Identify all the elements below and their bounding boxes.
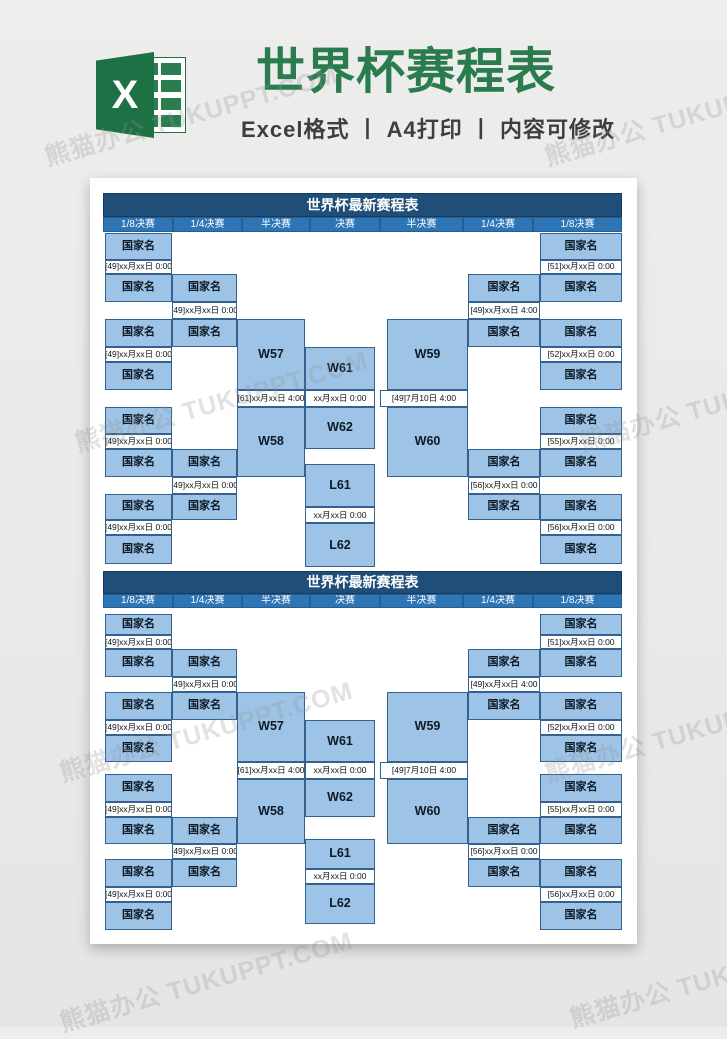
match-date: [49]xx月xx日 0:00 [105,260,172,274]
match-date: [49]xx月xx日 0:00 [105,802,172,817]
team-cell: 国家名 [468,449,540,477]
team-cell: 国家名 [172,649,237,677]
team-cell: 国家名 [105,649,172,677]
match-slot: W59 [387,319,468,391]
team-cell: 国家名 [105,735,172,762]
match-date: [49]xx月xx日 0:00 [172,477,237,494]
team-cell: 国家名 [105,494,172,521]
team-cell: 国家名 [172,692,237,721]
excel-logo-icon: X [96,52,186,138]
round-header: 1/8决赛 [533,217,622,232]
round-header: 1/8决赛 [103,594,173,609]
team-cell: 国家名 [105,774,172,802]
team-cell: 国家名 [172,859,237,887]
team-cell: 国家名 [540,535,622,564]
team-cell: 国家名 [540,902,622,931]
team-cell: 国家名 [105,692,172,721]
match-date: [56]xx月xx日 0:00 [540,520,622,535]
match-date: [49]xx月xx日 4:00 [468,302,540,319]
match-date: [55]xx月xx日 0:00 [540,802,622,817]
bracket-table: 世界杯最新赛程表1/8决赛1/4决赛半决赛决赛半决赛1/4决赛1/8决赛国家名[… [103,571,622,931]
match-date: [52]xx月xx日 0:00 [540,347,622,362]
team-cell: 国家名 [172,319,237,347]
team-cell: 国家名 [540,692,622,721]
round-header: 1/4决赛 [173,217,242,232]
team-cell: 国家名 [540,817,622,844]
team-cell: 国家名 [468,274,540,303]
team-cell: 国家名 [468,817,540,844]
match-slot: W58 [237,779,305,844]
team-cell: 国家名 [540,319,622,347]
round-header: 1/8决赛 [533,594,622,609]
match-slot: W61 [305,720,375,762]
banner-title: 世界杯赛程表 [216,46,596,100]
match-date: [49]xx月xx日 0:00 [172,677,237,692]
team-cell: 国家名 [105,449,172,477]
team-cell: 国家名 [172,817,237,844]
match-date: [61]xx月xx日 4:00 [237,390,305,407]
round-header: 决赛 [310,217,380,232]
team-cell: 国家名 [540,362,622,391]
team-cell: 国家名 [540,614,622,636]
team-cell: 国家名 [105,407,172,434]
team-cell: 国家名 [468,692,540,721]
team-cell: 国家名 [540,494,622,521]
match-date: xx月xx日 0:00 [305,869,375,884]
round-header: 1/4决赛 [463,217,533,232]
round-header: 半决赛 [380,594,463,609]
match-slot: W62 [305,779,375,817]
match-date: xx月xx日 0:00 [305,507,375,524]
banner-subtitle: Excel格式 丨 A4打印 丨 内容可修改 [228,112,628,144]
team-cell: 国家名 [540,449,622,477]
match-date: xx月xx日 0:00 [305,762,375,779]
match-date: [56]xx月xx日 0:00 [540,887,622,902]
a4-page-preview: 世界杯最新赛程表1/8决赛1/4决赛半决赛决赛半决赛1/4决赛1/8决赛国家名[… [90,178,637,944]
match-slot: W58 [237,407,305,477]
match-date: [49]xx月xx日 0:00 [105,635,172,649]
team-cell: 国家名 [105,859,172,887]
match-slot: W60 [387,407,468,477]
match-date: [56]xx月xx日 0:00 [468,844,540,859]
team-cell: 国家名 [468,859,540,887]
team-cell: 国家名 [540,735,622,762]
match-date: [49]7月10日 4:00 [380,762,468,779]
match-slot: W61 [305,347,375,391]
match-date: [49]xx月xx日 4:00 [468,677,540,692]
team-cell: 国家名 [105,614,172,636]
match-date: [61]xx月xx日 4:00 [237,762,305,779]
match-date: [49]7月10日 4:00 [380,390,468,407]
match-slot: W57 [237,692,305,762]
excel-logo-cover: X [96,52,154,138]
match-date: [49]xx月xx日 0:00 [172,302,237,319]
team-cell: 国家名 [540,233,622,260]
team-cell: 国家名 [468,649,540,677]
team-cell: 国家名 [105,319,172,347]
match-date: [49]xx月xx日 0:00 [105,520,172,535]
team-cell: 国家名 [540,859,622,887]
match-date: [49]xx月xx日 0:00 [172,844,237,859]
match-date: [51]xx月xx日 0:00 [540,260,622,274]
match-slot: W62 [305,407,375,449]
round-header: 1/8决赛 [103,217,173,232]
match-date: xx月xx日 0:00 [305,390,375,407]
team-cell: 国家名 [468,319,540,347]
team-cell: 国家名 [172,274,237,303]
round-header: 半决赛 [380,217,463,232]
match-slot: L62 [305,523,375,567]
team-cell: 国家名 [105,233,172,260]
team-cell: 国家名 [540,407,622,434]
team-cell: 国家名 [105,817,172,844]
team-cell: 国家名 [172,494,237,521]
match-date: [49]xx月xx日 0:00 [105,347,172,362]
match-date: [49]xx月xx日 0:00 [105,887,172,902]
bracket-table: 世界杯最新赛程表1/8决赛1/4决赛半决赛决赛半决赛1/4决赛1/8决赛国家名[… [103,193,622,567]
round-header: 半决赛 [242,594,310,609]
match-slot: W59 [387,692,468,762]
match-slot: L61 [305,464,375,507]
team-cell: 国家名 [540,274,622,303]
bracket-title: 世界杯最新赛程表 [103,571,622,594]
match-date: [49]xx月xx日 0:00 [105,720,172,735]
match-slot: W60 [387,779,468,844]
bracket-title: 世界杯最新赛程表 [103,193,622,217]
match-date: [51]xx月xx日 0:00 [540,635,622,649]
round-header: 决赛 [310,594,380,609]
team-cell: 国家名 [540,649,622,677]
team-cell: 国家名 [105,535,172,564]
round-header: 1/4决赛 [173,594,242,609]
match-date: [49]xx月xx日 0:00 [105,434,172,449]
match-slot: W57 [237,319,305,391]
round-header: 1/4决赛 [463,594,533,609]
match-slot: L61 [305,839,375,869]
team-cell: 国家名 [105,274,172,303]
round-header: 半决赛 [242,217,310,232]
team-cell: 国家名 [540,774,622,802]
match-date: [55]xx月xx日 0:00 [540,434,622,449]
team-cell: 国家名 [105,902,172,931]
team-cell: 国家名 [468,494,540,521]
excel-logo-letter: X [112,73,139,118]
team-cell: 国家名 [172,449,237,477]
match-date: [56]xx月xx日 0:00 [468,477,540,494]
match-slot: L62 [305,884,375,924]
match-date: [52]xx月xx日 0:00 [540,720,622,735]
team-cell: 国家名 [105,362,172,391]
